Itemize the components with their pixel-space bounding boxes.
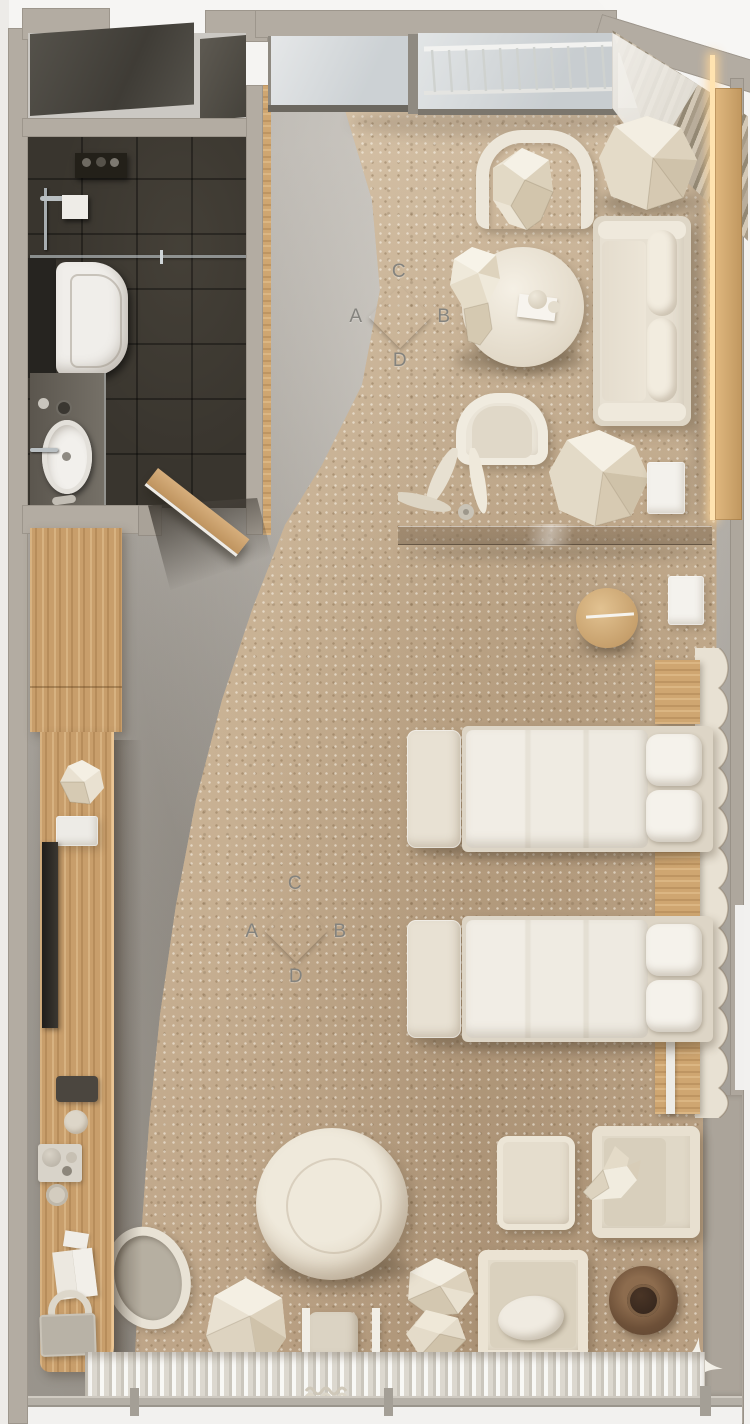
bathroom-top-band bbox=[22, 118, 250, 137]
table-sculpture bbox=[444, 245, 514, 347]
marker2-letter-top: C bbox=[288, 873, 302, 895]
bed1-duvet bbox=[466, 730, 648, 848]
toiletry-bottle-3 bbox=[110, 158, 119, 167]
faceted-swan-sculpture bbox=[573, 1140, 643, 1208]
tv bbox=[42, 842, 58, 1028]
window-fixed bbox=[268, 36, 408, 112]
sofa-armrest-bottom bbox=[598, 403, 686, 421]
left-wall bbox=[8, 28, 28, 1424]
toiletry-bottle-2 bbox=[96, 157, 106, 167]
marker1-letter-bottom: D bbox=[393, 350, 407, 372]
marker1-letter-left: A bbox=[349, 306, 362, 328]
bed2-pillow-bottom bbox=[646, 980, 702, 1032]
window-mullion bbox=[408, 34, 418, 114]
armchair-sculpture bbox=[487, 146, 557, 232]
white-nightstand bbox=[668, 576, 704, 625]
bed2-duvet bbox=[466, 920, 648, 1038]
marker1-letter-right: B bbox=[437, 306, 450, 328]
faceted-boulder-1 bbox=[595, 112, 700, 212]
shower-niche-box bbox=[62, 195, 88, 219]
table-decor-cup bbox=[548, 301, 560, 313]
desk-cup-1 bbox=[66, 1152, 77, 1163]
balcony-railing bbox=[418, 33, 618, 115]
window-post-3 bbox=[700, 1386, 711, 1416]
sink-drain bbox=[62, 452, 71, 461]
vanity-bottle-2 bbox=[56, 400, 72, 416]
window-post-2 bbox=[384, 1388, 393, 1416]
console-rock-sculpture bbox=[58, 758, 106, 808]
bathroom-east-wall-wood-trim bbox=[263, 85, 271, 535]
sofa-seat bbox=[602, 241, 646, 401]
toiletry-bottle-1 bbox=[82, 158, 91, 167]
shower-glass-screen bbox=[30, 255, 246, 258]
toilet-cistern-panel bbox=[28, 258, 56, 378]
wood-nightstand-block-3 bbox=[655, 1042, 700, 1114]
marker1-letter-top: C bbox=[392, 261, 406, 283]
console-white-box bbox=[56, 816, 98, 846]
wardrobe bbox=[30, 528, 122, 732]
faceted-boulder-2 bbox=[545, 428, 653, 528]
bed2-pillow-top bbox=[646, 924, 702, 976]
bed1-pillow-top bbox=[646, 734, 702, 786]
bed1-pillow-bottom bbox=[646, 790, 702, 842]
armchair-ottoman bbox=[497, 1136, 575, 1230]
window-balcony bbox=[418, 33, 618, 115]
pouf-crease bbox=[286, 1158, 382, 1254]
bathroom-east-wall bbox=[246, 85, 263, 535]
desk-jar bbox=[46, 1184, 68, 1206]
dark-table-bowl bbox=[627, 1284, 660, 1317]
floor-plan-canvas: C A B D bbox=[0, 0, 750, 1424]
right-wall-recess-white bbox=[735, 905, 744, 1090]
wardrobe-divider bbox=[30, 686, 122, 688]
mirror-panel-left bbox=[30, 23, 194, 116]
shower-glass-divider-vertical bbox=[104, 373, 106, 505]
glass-partition-sheen bbox=[430, 524, 670, 546]
window-post-1 bbox=[130, 1388, 139, 1416]
table-decor-sphere bbox=[528, 290, 547, 309]
marker2-letter-right: B bbox=[333, 921, 346, 943]
desk-laptop-tray bbox=[39, 1313, 96, 1357]
partition-shadow bbox=[402, 546, 710, 558]
wood-nightstand-block-2 bbox=[655, 848, 700, 918]
marker2-letter-bottom: D bbox=[289, 966, 303, 988]
sofa-back-cushion-2 bbox=[647, 318, 677, 402]
bed1-bench bbox=[407, 730, 461, 848]
console-dark-tray bbox=[56, 1076, 98, 1102]
sofa-back-cushion-1 bbox=[647, 230, 677, 316]
console-shadow bbox=[114, 740, 142, 1372]
white-side-table bbox=[647, 462, 685, 514]
wood-wall-panel bbox=[715, 88, 742, 520]
mirror-panel-right bbox=[200, 35, 246, 121]
toilet-seat-line bbox=[70, 274, 122, 368]
wavy-headboard bbox=[695, 648, 735, 1118]
desk-kettle bbox=[42, 1148, 61, 1167]
sink-faucet bbox=[30, 448, 58, 452]
vanity-bottle-1 bbox=[38, 398, 49, 409]
wood-nightstand-block-1 bbox=[655, 660, 700, 724]
desk-plate bbox=[64, 1110, 88, 1134]
leaf-sculpture bbox=[398, 448, 510, 530]
desk-cup-2 bbox=[62, 1166, 72, 1176]
shower-glass-handle bbox=[160, 250, 163, 264]
bottom-sheer-curtain bbox=[85, 1352, 705, 1398]
bed2-bench bbox=[407, 920, 461, 1038]
marker2-letter-left: A bbox=[245, 921, 258, 943]
